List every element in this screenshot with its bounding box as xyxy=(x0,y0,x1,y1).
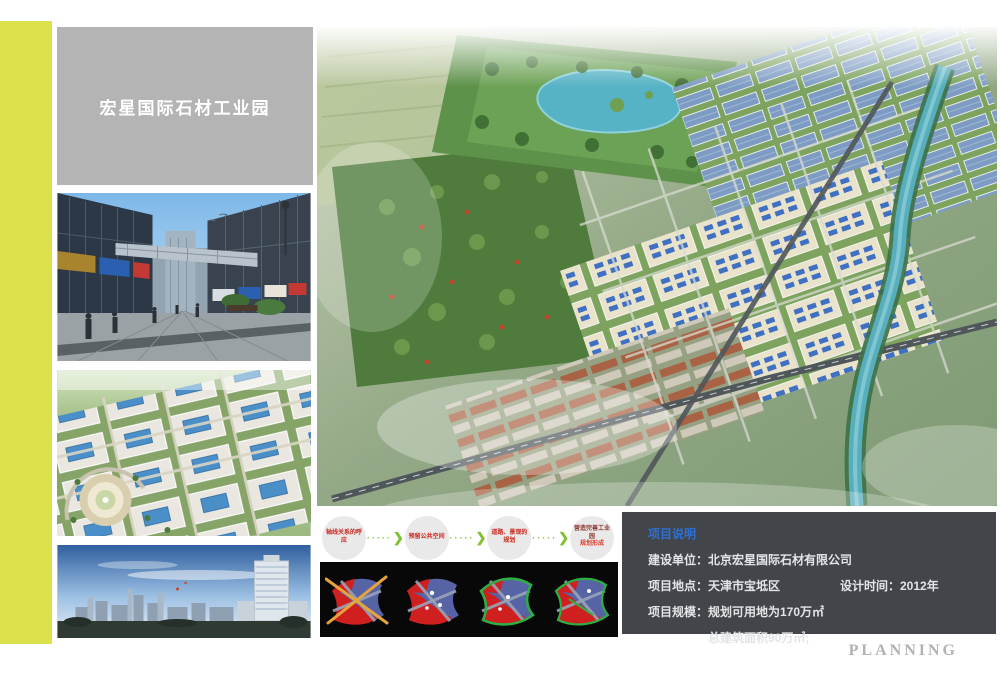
info-design-time: 设计时间：2012年 xyxy=(840,577,939,594)
info-row-owner: 建设单位：北京宏星国际石材有限公司 xyxy=(648,551,996,568)
flow-step-4: 营造完善工业园 规划形成 xyxy=(570,516,614,560)
flow-step-4-sublabel: 规划形成 xyxy=(580,541,604,549)
site-diagram-final-plan xyxy=(549,571,613,629)
concept-flow: 轴线关系的呼应 ····· ❯ 预留公共空间 ····· ❯ 道路、景观的规划 … xyxy=(322,514,614,561)
project-info-box: 项目说明 建设单位：北京宏星国际石材有限公司 项目地点：天津市宝坻区 设计时间：… xyxy=(622,512,996,634)
street-scene-image xyxy=(57,193,311,361)
info-row-location: 项目地点：天津市宝坻区 设计时间：2012年 xyxy=(648,577,996,594)
flow-arrow-icon: ····· ❯ xyxy=(366,530,405,546)
project-info-title: 项目说明 xyxy=(648,525,996,542)
flow-step-3-label: 道路、景观的规划 xyxy=(487,530,531,546)
concept-diagram-panel xyxy=(320,562,618,637)
flow-arrow-icon: ····· ❯ xyxy=(531,530,570,546)
photo-aerial-rendering xyxy=(57,370,311,536)
title-box: 宏星国际石材工业园 xyxy=(57,27,313,185)
flow-step-1-label: 轴线关系的呼应 xyxy=(322,530,366,546)
photo-dusk-rendering xyxy=(57,545,311,638)
masterplan-birdview-image xyxy=(317,27,997,506)
site-diagram-roads-landscape xyxy=(474,571,538,629)
dusk-skyline-image xyxy=(57,545,311,638)
site-diagram-axes xyxy=(325,571,389,629)
flow-step-4-label: 营造完善工业园 xyxy=(570,526,614,542)
site-diagram-public-space xyxy=(400,571,464,629)
page-title: 宏星国际石材工业园 xyxy=(100,94,271,119)
flow-arrow-icon: ····· ❯ xyxy=(449,530,488,546)
photo-street-rendering xyxy=(57,193,311,361)
planning-watermark: PLANNING xyxy=(849,642,958,660)
flow-step-2-label: 预留公共空间 xyxy=(406,534,448,542)
info-row-scale: 项目规模：规划可用地为170万㎡ xyxy=(648,603,996,620)
main-aerial-rendering xyxy=(317,27,997,506)
flow-step-1: 轴线关系的呼应 xyxy=(322,516,366,560)
aerial-park-image xyxy=(57,370,311,536)
flow-step-3: 道路、景观的规划 xyxy=(487,516,531,560)
accent-strip xyxy=(0,21,52,644)
flow-step-2: 预留公共空间 xyxy=(405,516,449,560)
presentation-board: 宏星国际石材工业园 xyxy=(0,0,1000,678)
